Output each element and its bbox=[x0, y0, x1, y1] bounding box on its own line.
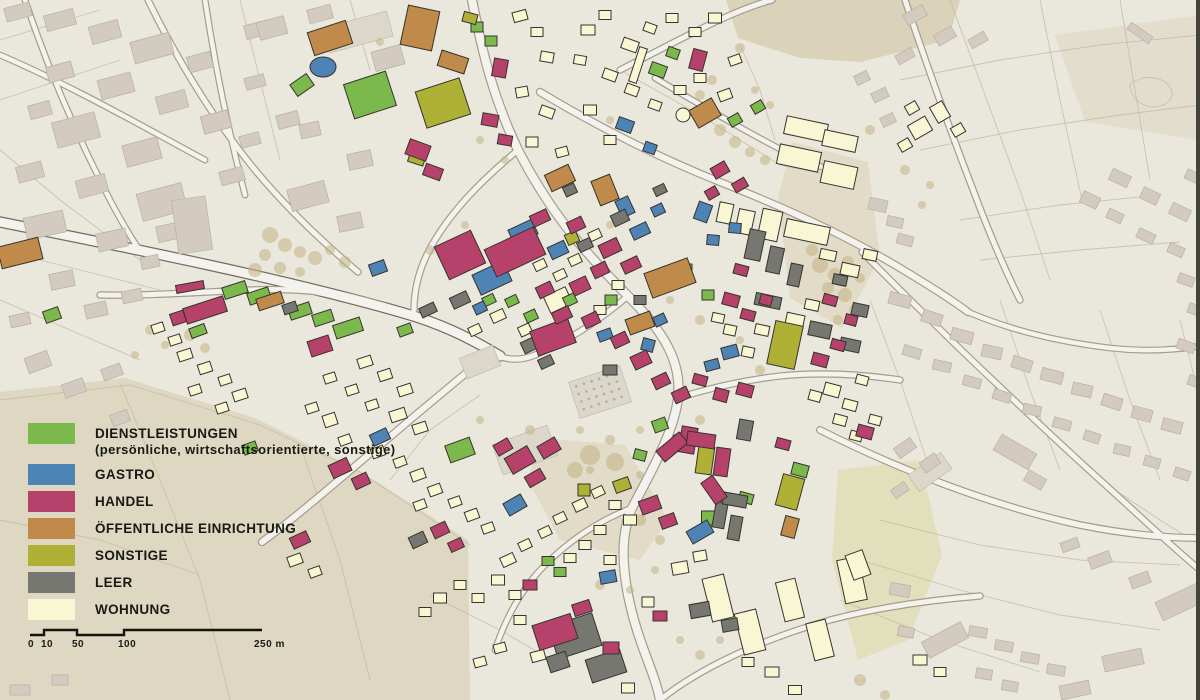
building-H bbox=[492, 58, 509, 78]
tree bbox=[295, 267, 305, 277]
building-W bbox=[454, 581, 466, 590]
tree bbox=[676, 636, 684, 644]
building-D bbox=[542, 557, 554, 566]
building-W bbox=[723, 324, 737, 336]
building-H bbox=[481, 113, 499, 128]
tree bbox=[476, 416, 484, 424]
tree bbox=[651, 566, 659, 574]
building-W bbox=[765, 667, 779, 677]
tree bbox=[714, 124, 726, 136]
legend-item-dienstleistungen: DIENSTLEISTUNGEN(persönliche, wirtschaft… bbox=[28, 423, 396, 458]
legend-label-gastro: GASTRO bbox=[95, 464, 155, 483]
legend-item-sonstige: SONSTIGE bbox=[28, 545, 396, 566]
tree bbox=[751, 86, 759, 94]
building-W bbox=[492, 575, 505, 585]
building-W bbox=[584, 105, 597, 115]
legend-swatch-handel bbox=[28, 491, 75, 512]
building-L bbox=[736, 419, 753, 441]
legend-label-oeffentliche-einrichtung: ÖFFENTLICHE EINRICHTUNG bbox=[95, 518, 296, 537]
building-D bbox=[605, 295, 617, 305]
tree bbox=[476, 136, 484, 144]
building-S bbox=[695, 445, 715, 475]
building-W bbox=[754, 324, 770, 337]
building-H bbox=[603, 642, 619, 654]
legend-swatch-sonstige bbox=[28, 545, 75, 566]
building-W bbox=[573, 55, 586, 66]
building-W bbox=[531, 28, 543, 37]
scale-label-10: 10 bbox=[41, 639, 53, 650]
tree bbox=[278, 238, 292, 252]
legend-sublabel-dienstleistungen: (persönliche, wirtschaftsorientierte, so… bbox=[95, 442, 396, 458]
building-W bbox=[671, 561, 689, 576]
legend-label-leer: LEER bbox=[95, 572, 133, 591]
building-W bbox=[515, 86, 529, 98]
tree bbox=[131, 351, 139, 359]
building-G bbox=[641, 338, 656, 353]
legend: DIENSTLEISTUNGEN(persönliche, wirtschaft… bbox=[28, 423, 396, 626]
building-L bbox=[721, 618, 739, 633]
building-W bbox=[609, 501, 621, 510]
legend-item-leer: LEER bbox=[28, 572, 396, 593]
tree bbox=[262, 227, 278, 243]
building-W bbox=[689, 28, 701, 37]
building-W bbox=[594, 526, 606, 535]
tree bbox=[806, 244, 818, 256]
tree bbox=[736, 336, 744, 344]
tree bbox=[580, 445, 600, 465]
tree bbox=[259, 249, 271, 261]
building-W bbox=[694, 74, 706, 83]
building-W bbox=[666, 14, 678, 23]
tree bbox=[838, 288, 852, 302]
building-round-G bbox=[310, 57, 336, 77]
legend-item-wohnung: WOHNUNG bbox=[28, 599, 396, 620]
building-W bbox=[540, 51, 555, 63]
tree bbox=[576, 426, 584, 434]
tree bbox=[926, 181, 934, 189]
tree bbox=[695, 90, 705, 100]
tree bbox=[760, 155, 770, 165]
tree bbox=[274, 262, 286, 274]
legend-swatch-leer bbox=[28, 572, 75, 593]
tree bbox=[900, 165, 910, 175]
legend-swatch-oeffentliche-einrichtung bbox=[28, 518, 75, 539]
building-W bbox=[604, 136, 616, 145]
tree bbox=[755, 365, 765, 375]
tree bbox=[695, 315, 705, 325]
tree bbox=[766, 101, 774, 109]
building-L bbox=[603, 365, 617, 375]
legend-item-gastro: GASTRO bbox=[28, 464, 396, 485]
scale-label-0: 0 bbox=[28, 639, 34, 650]
building-W bbox=[604, 556, 616, 565]
building-G bbox=[729, 222, 742, 233]
tree bbox=[880, 690, 890, 700]
tree bbox=[606, 116, 614, 124]
scale-bar: 0 10 50 100 250 m bbox=[30, 626, 290, 656]
scale-label-250m: 250 m bbox=[254, 639, 285, 650]
tree bbox=[716, 636, 724, 644]
building-W bbox=[581, 25, 595, 35]
tree bbox=[525, 425, 535, 435]
tree bbox=[626, 586, 634, 594]
building-W bbox=[642, 597, 654, 607]
tree bbox=[707, 75, 717, 85]
tree bbox=[918, 201, 926, 209]
building-W bbox=[913, 655, 927, 665]
building-W bbox=[711, 312, 725, 323]
building-W bbox=[934, 668, 946, 677]
tree bbox=[248, 263, 262, 277]
legend-item-handel: HANDEL bbox=[28, 491, 396, 512]
building-G bbox=[599, 570, 617, 585]
tree bbox=[833, 315, 843, 325]
legend-label-sonstige: SONSTIGE bbox=[95, 545, 168, 564]
building-D bbox=[554, 568, 566, 577]
building-W bbox=[741, 346, 755, 358]
building-W bbox=[624, 515, 637, 525]
building-W bbox=[674, 86, 686, 95]
tree bbox=[636, 471, 644, 479]
building-L bbox=[832, 274, 848, 287]
map-right-edge-strip bbox=[1196, 0, 1200, 700]
legend-label-wohnung: WOHNUNG bbox=[95, 599, 171, 618]
tree bbox=[339, 256, 351, 268]
building-W bbox=[612, 281, 624, 290]
tree bbox=[729, 136, 741, 148]
scale-label-100: 100 bbox=[118, 639, 136, 650]
building-H bbox=[653, 611, 667, 621]
tree bbox=[655, 535, 665, 545]
tree bbox=[586, 466, 594, 474]
legend-swatch-wohnung bbox=[28, 599, 75, 620]
building-W bbox=[434, 593, 447, 603]
tree bbox=[605, 435, 615, 445]
context-building bbox=[10, 685, 30, 695]
building-W bbox=[599, 11, 611, 20]
building-round-W bbox=[676, 108, 690, 122]
legend-swatch-dienstleistungen bbox=[28, 423, 75, 444]
building-W bbox=[622, 683, 635, 693]
tree bbox=[325, 245, 335, 255]
building-W bbox=[709, 13, 722, 23]
building-D bbox=[702, 290, 714, 300]
scale-bar-line bbox=[30, 626, 275, 638]
building-W bbox=[526, 137, 538, 147]
tree bbox=[200, 343, 210, 353]
legend-label-dienstleistungen: DIENSTLEISTUNGEN bbox=[95, 426, 238, 441]
tree bbox=[161, 341, 169, 349]
building-W bbox=[804, 299, 820, 312]
tree bbox=[666, 296, 674, 304]
tree bbox=[425, 245, 435, 255]
building-W bbox=[693, 550, 708, 562]
building-W bbox=[862, 249, 878, 262]
tree bbox=[745, 147, 755, 157]
tree bbox=[865, 125, 875, 135]
building-W bbox=[472, 594, 484, 603]
tree bbox=[567, 462, 583, 478]
tree bbox=[695, 650, 705, 660]
building-G bbox=[707, 234, 720, 245]
building-W bbox=[579, 541, 591, 550]
tree bbox=[606, 453, 624, 471]
building-W bbox=[564, 554, 576, 563]
building-W bbox=[789, 686, 802, 695]
building-W bbox=[509, 591, 521, 600]
tree bbox=[695, 415, 705, 425]
building-H bbox=[497, 134, 513, 146]
tree bbox=[735, 43, 745, 53]
context-building bbox=[52, 675, 68, 685]
building-W bbox=[514, 616, 526, 625]
scale-label-50: 50 bbox=[72, 639, 84, 650]
town-land-use-map: DIENSTLEISTUNGEN(persönliche, wirtschaft… bbox=[0, 0, 1200, 700]
legend-swatch-gastro bbox=[28, 464, 75, 485]
building-L bbox=[634, 296, 646, 305]
tree bbox=[294, 246, 306, 258]
legend-item-oeffentliche-einrichtung: ÖFFENTLICHE EINRICHTUNG bbox=[28, 518, 396, 539]
building-W bbox=[742, 658, 754, 667]
tree bbox=[636, 426, 644, 434]
building-H bbox=[523, 580, 537, 590]
building-L bbox=[689, 601, 711, 618]
tree bbox=[854, 674, 866, 686]
building-S bbox=[578, 484, 590, 496]
tree bbox=[308, 251, 322, 265]
tree bbox=[376, 38, 384, 46]
tree bbox=[501, 156, 509, 164]
building-D bbox=[485, 36, 497, 46]
legend-label-handel: HANDEL bbox=[95, 491, 154, 510]
tree bbox=[461, 221, 469, 229]
building-W bbox=[419, 608, 431, 617]
context-building bbox=[171, 196, 212, 254]
